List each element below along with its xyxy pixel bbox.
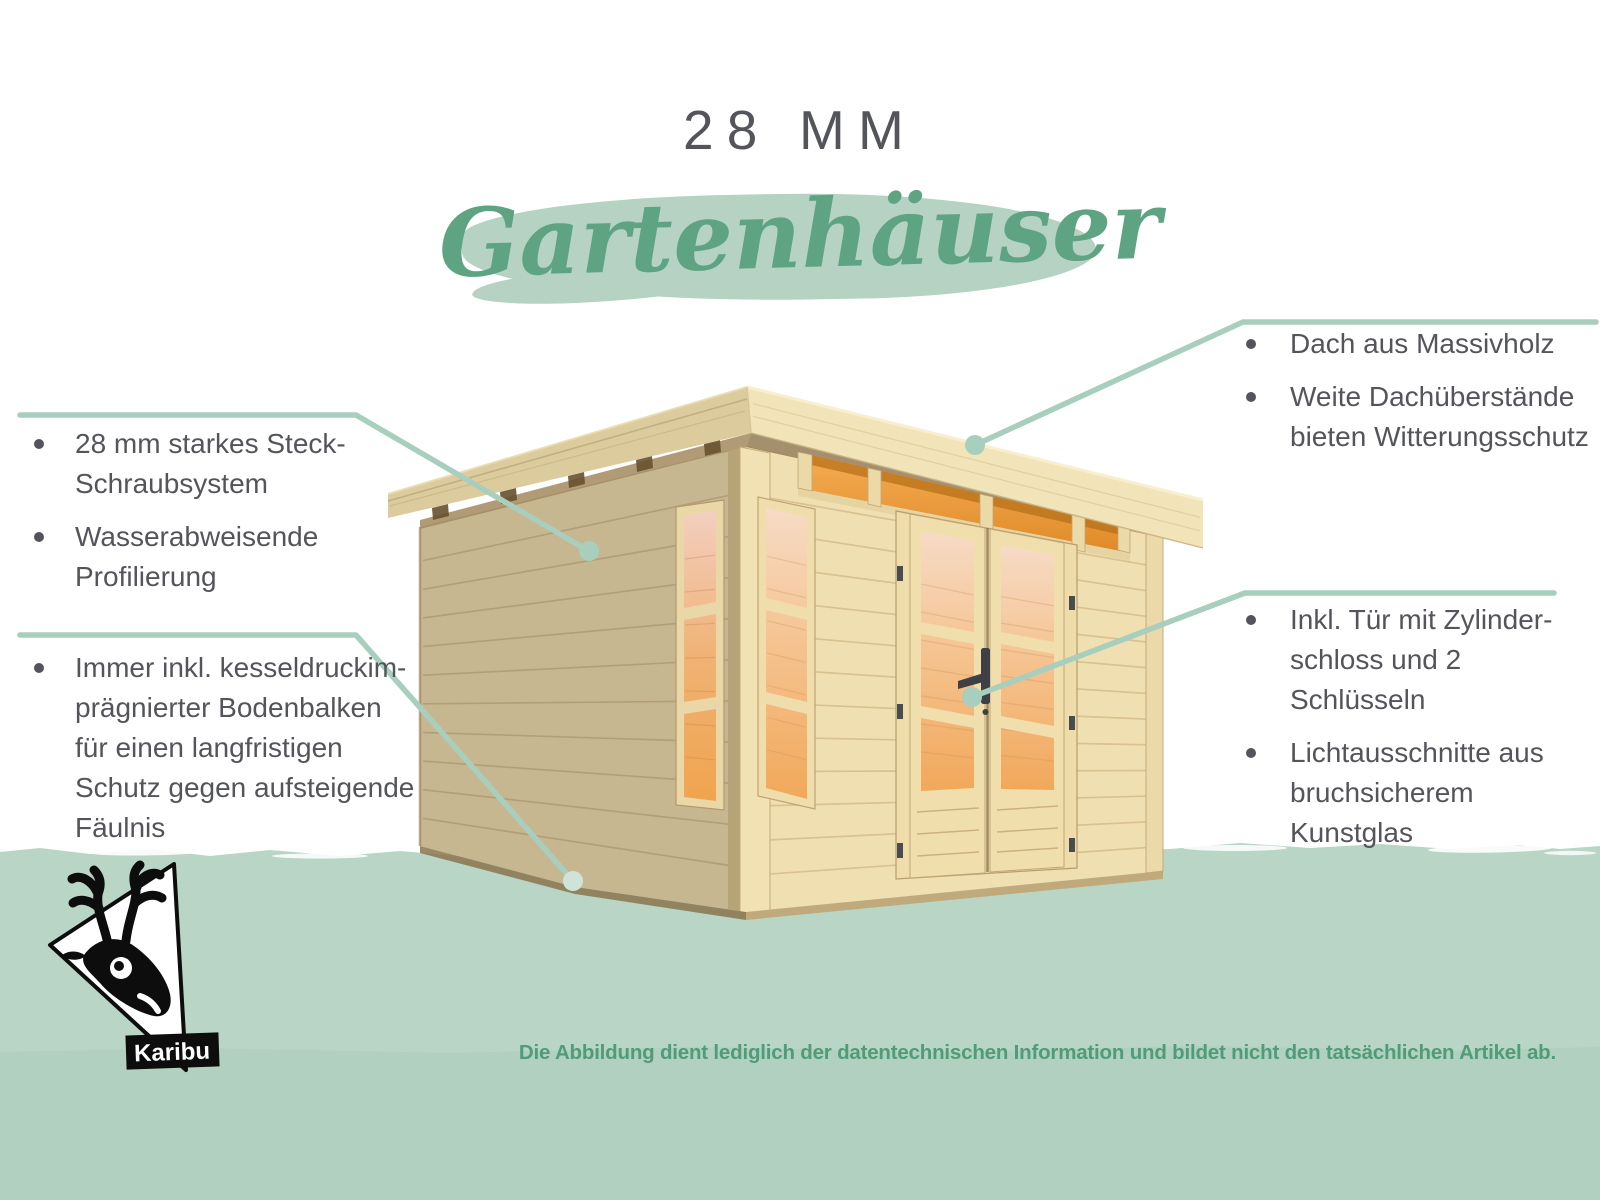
- callout-text: Lichtausschnitte aus bruchsicherem Kunst…: [1290, 733, 1600, 853]
- corner-board-right: [1146, 533, 1163, 873]
- front-window: [758, 497, 815, 809]
- callout-text: Immer inkl. kesseldruckim- prägnierter B…: [75, 648, 450, 848]
- callout-dot-roof: [965, 435, 985, 455]
- double-door: [896, 511, 1077, 879]
- plank-line: [685, 658, 715, 659]
- page-title: 28 MM: [0, 98, 1600, 162]
- bullet-dot: [34, 663, 44, 673]
- brand-name: Karibu: [134, 1038, 211, 1068]
- callout-dot-wall: [579, 541, 599, 561]
- callout-text: Wasserabweisende Profilierung: [75, 517, 440, 597]
- list-item: Wasserabweisende Profilierung: [20, 517, 440, 597]
- plank-line: [685, 691, 715, 692]
- callout-text: Dach aus Massivholz: [1290, 324, 1600, 364]
- list-item: Dach aus Massivholz: [1232, 324, 1600, 364]
- list-item: Lichtausschnitte aus bruchsicherem Kunst…: [1232, 733, 1600, 853]
- bullet-dot: [34, 439, 44, 449]
- list-item: Inkl. Tür mit Zylinder- schloss und 2 Sc…: [1232, 600, 1600, 720]
- band-lower-layer: [0, 1046, 1600, 1200]
- bullet-dot: [1246, 748, 1256, 758]
- bullet-dot: [34, 532, 44, 542]
- callout-dot-floor: [563, 871, 583, 891]
- callout-right-mid: Inkl. Tür mit Zylinder- schloss und 2 Sc…: [1232, 600, 1600, 866]
- bullet-dot: [1246, 339, 1256, 349]
- list-item: Weite Dachüberstände bieten Witterungssc…: [1232, 377, 1600, 457]
- infographic-page: Karibu 28 MM Gartenhäuser 28 mm starkes …: [0, 0, 1600, 1200]
- side-window: [676, 500, 724, 810]
- callout-dot-door: [962, 687, 982, 707]
- callout-text: Inkl. Tür mit Zylinder- schloss und 2 Sc…: [1290, 600, 1600, 720]
- bullet-dot: [1246, 392, 1256, 402]
- callout-text: Weite Dachüberstände bieten Witterungssc…: [1290, 377, 1600, 457]
- footer-disclaimer: Die Abbildung dient lediglich der datent…: [519, 1041, 1556, 1065]
- list-item: 28 mm starkes Steck- Schraubsystem: [20, 424, 440, 504]
- callout-top-right: Dach aus Massivholz Weite Dachüberstände…: [1232, 324, 1600, 470]
- callout-left-bottom: Immer inkl. kesseldruckim- prägnierter B…: [20, 648, 450, 861]
- callout-text: 28 mm starkes Steck- Schraubsystem: [75, 424, 440, 504]
- callout-left-top: 28 mm starkes Steck- Schraubsystem Wasse…: [20, 424, 440, 610]
- bullet-dot: [1246, 615, 1256, 625]
- list-item: Immer inkl. kesseldruckim- prägnierter B…: [20, 648, 450, 848]
